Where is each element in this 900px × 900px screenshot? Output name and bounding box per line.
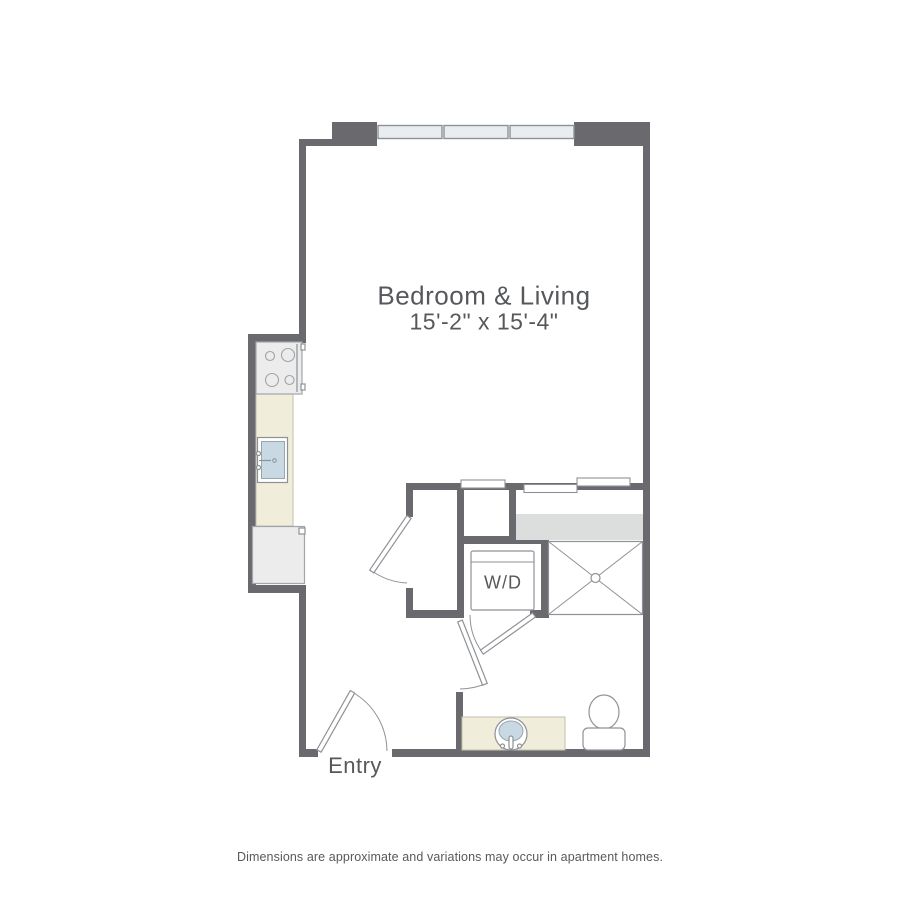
burner-large-1: [282, 349, 295, 362]
disclaimer-text: Dimensions are approximate and variation…: [237, 850, 663, 864]
bathroom: [462, 695, 625, 750]
washer-dryer-label: W/D: [484, 573, 522, 594]
refrigerator-handle: [299, 528, 305, 534]
closet-shelf: [516, 514, 643, 540]
laundry-door-leaf: [480, 613, 535, 654]
toilet-tank: [583, 728, 625, 750]
window-pane-3: [510, 126, 574, 139]
burner-large-2: [266, 374, 279, 387]
entry-label: Entry: [328, 753, 382, 779]
closet-opening-panel-2: [524, 485, 577, 493]
floor-plan-page: Bedroom & Living 15'-2" x 15'-4" W/D Ent…: [0, 0, 900, 900]
faucet-handle-1: [257, 452, 261, 456]
closet-opening-panel-3: [577, 478, 630, 486]
closet-door-leaf: [370, 516, 411, 573]
kitchen: [253, 342, 306, 584]
closet-door-arc: [372, 571, 407, 583]
closets: [516, 514, 643, 615]
outer-walls: [248, 122, 650, 757]
room-label: Bedroom & Living: [377, 281, 590, 312]
entry-door-leaf: [317, 691, 355, 753]
bathroom-door-arc: [460, 684, 485, 689]
stove-hinge-top: [301, 344, 305, 350]
floor-plan-drawing: [0, 0, 900, 900]
room-dimensions: 15'-2" x 15'-4": [410, 309, 559, 336]
window-band: [378, 126, 574, 139]
entry-door-arc: [352, 692, 387, 751]
toilet-bowl: [589, 695, 619, 729]
closet-opening-panel-1: [461, 480, 505, 488]
burner-small-1: [266, 352, 275, 361]
burner-small-2: [285, 376, 294, 385]
bathroom-faucet-handle-1: [501, 744, 505, 748]
outer-wall-path: [248, 122, 650, 757]
stove: [256, 342, 302, 394]
closet-rod-center: [591, 574, 600, 583]
faucet-handle-2: [257, 466, 261, 470]
window-pane-2: [444, 126, 508, 139]
stove-hinge-bottom: [301, 384, 305, 390]
bathroom-faucet: [509, 736, 513, 749]
bathroom-faucet-handle-2: [518, 744, 522, 748]
window-pane-1: [378, 126, 442, 139]
refrigerator: [253, 527, 305, 584]
